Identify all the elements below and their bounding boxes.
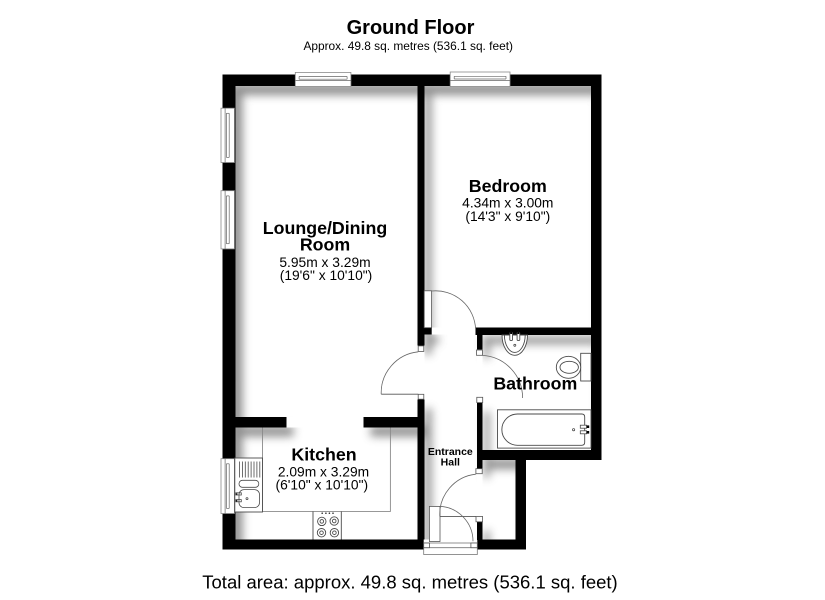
svg-text:(19'6" x 10'10"): (19'6" x 10'10") xyxy=(280,268,373,283)
svg-text:Total area: approx. 49.8 sq. m: Total area: approx. 49.8 sq. metres (536… xyxy=(202,572,617,593)
svg-text:(14'3" x 9'10"): (14'3" x 9'10") xyxy=(465,209,550,224)
svg-text:Room: Room xyxy=(300,234,350,254)
svg-text:Ground Floor: Ground Floor xyxy=(347,17,475,39)
svg-text:Approx. 49.8 sq. metres (536.1: Approx. 49.8 sq. metres (536.1 sq. feet) xyxy=(303,39,513,53)
svg-text:(6'10" x 10'10"): (6'10" x 10'10") xyxy=(276,477,369,492)
svg-text:Hall: Hall xyxy=(441,457,460,469)
svg-text:Bedroom: Bedroom xyxy=(469,176,547,196)
svg-text:Bathroom: Bathroom xyxy=(493,373,577,393)
svg-text:Kitchen: Kitchen xyxy=(291,445,356,465)
